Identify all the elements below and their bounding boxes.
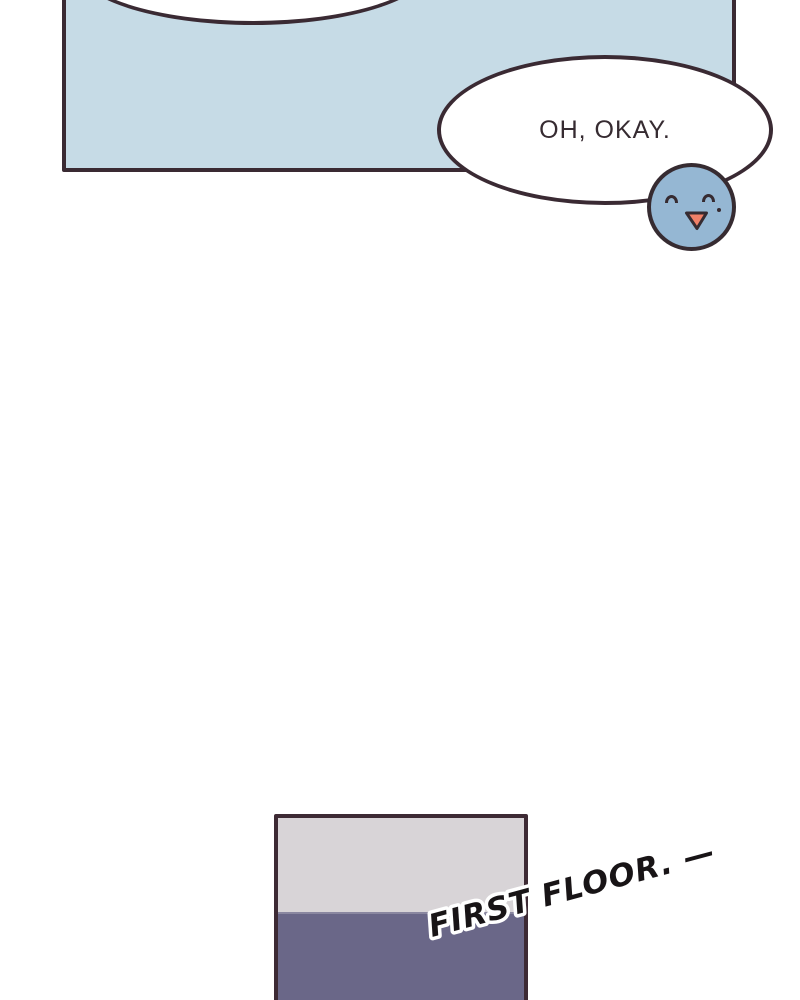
character-face bbox=[647, 163, 736, 251]
closed-happy-eye-right bbox=[702, 194, 715, 202]
caption-container: FIRST FLOOR. — bbox=[410, 840, 720, 960]
closed-happy-eye-left bbox=[665, 195, 678, 203]
comic-page: OH, OKAY. FIRST FLOOR. — bbox=[0, 0, 800, 1000]
open-mouth-tongue bbox=[683, 209, 710, 232]
beauty-mark bbox=[717, 208, 721, 212]
caption-text-first-floor: FIRST FLOOR. — bbox=[425, 833, 720, 944]
speech-bubble-text: OH, OKAY. bbox=[539, 116, 671, 145]
tongue-shape bbox=[687, 213, 707, 229]
